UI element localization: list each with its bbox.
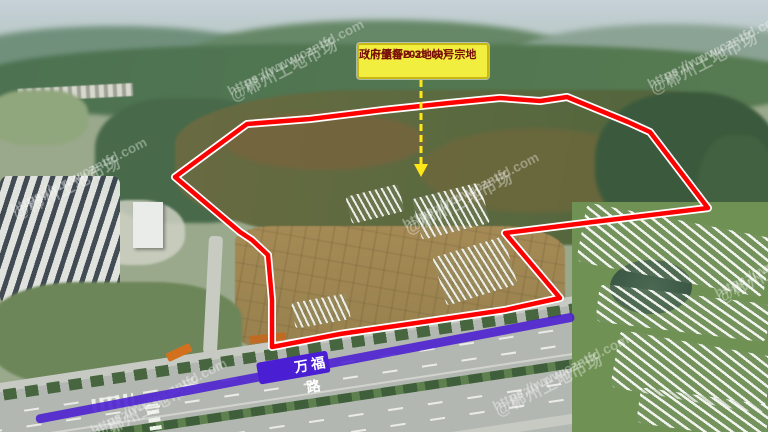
- aerial-photo: @郴州土地市场https://www.czntfd.com @郴州土地市场htt…: [0, 0, 768, 432]
- label-arrow-head: [414, 164, 428, 177]
- parcel-label-box: 政府储备2025-09号宗地 （卜里坪B-3地块）: [357, 43, 489, 79]
- parcel-boundary-casing: [175, 97, 708, 347]
- parcel-label-line2: （卜里坪B-3地块）: [359, 48, 454, 63]
- parcel-boundary: [175, 97, 708, 347]
